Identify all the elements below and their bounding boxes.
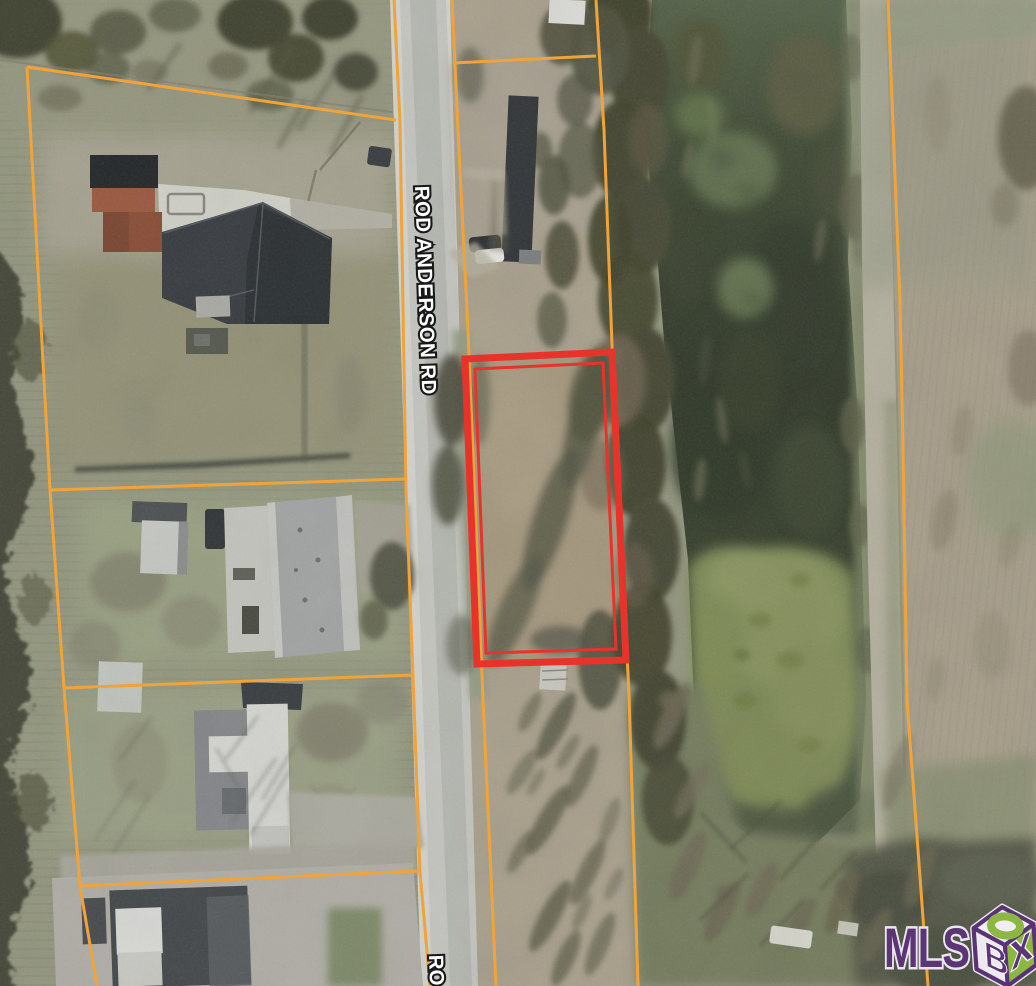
svg-text:MLS: MLS (884, 917, 969, 980)
svg-text:RO: RO (424, 954, 448, 986)
